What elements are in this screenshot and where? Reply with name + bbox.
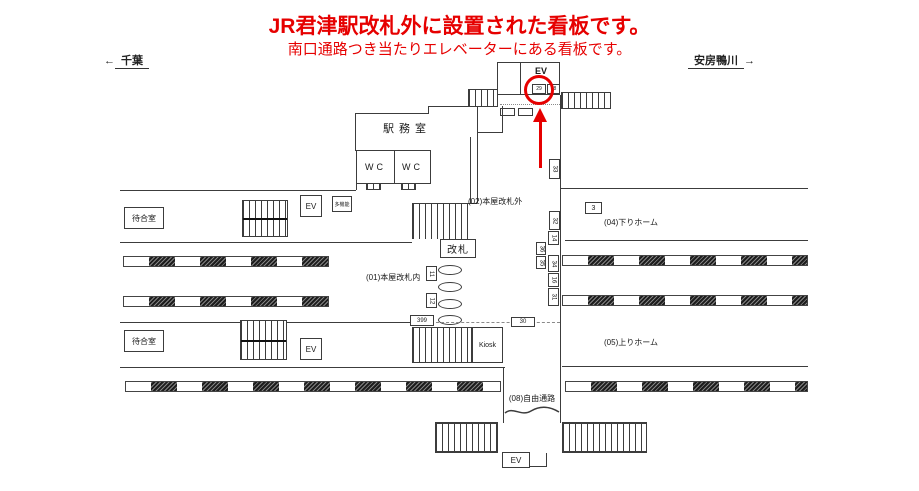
- sign-box-16: 16: [548, 273, 559, 287]
- waiting-room-upper: 待合室: [124, 207, 164, 229]
- corridor-wall: [560, 95, 561, 423]
- pillar-oval: [438, 265, 462, 275]
- platform-edge-line: [560, 188, 808, 189]
- wall-segment: [477, 106, 478, 203]
- wall-segment: [355, 113, 428, 114]
- station-sign-location-map: JR君津駅改札外に設置された看板です。 南口通路つき当たりエレベーターにある看板…: [0, 0, 919, 491]
- sign-box-34: 34: [548, 255, 559, 272]
- sign-box-35: 35: [536, 256, 546, 269]
- area-inside-gate-label: (01)本屋改札内: [366, 272, 420, 283]
- wc-room-right: WC: [394, 150, 431, 184]
- waiting-room-lower: 待合室: [124, 330, 164, 352]
- ticket-gate: 改札: [440, 239, 476, 258]
- down-platform-label: (04)下りホーム: [604, 217, 658, 228]
- wall-segment: [356, 184, 357, 190]
- platform-edge-line: [565, 240, 808, 241]
- wall-segment: [520, 62, 521, 95]
- map-title: JR君津駅改札外に設置された看板です。: [0, 10, 919, 40]
- track-strip: [125, 381, 501, 392]
- wall-segment: [428, 106, 498, 107]
- track-strip: [123, 256, 329, 267]
- gate-boundary-dashed-line: [436, 322, 560, 323]
- platform-edge-line: [562, 366, 808, 367]
- track-strip: [562, 295, 808, 306]
- wall-segment: [530, 466, 546, 467]
- multifunction-toilet: 多機能: [332, 196, 352, 212]
- stairs-south-east: [562, 422, 647, 453]
- direction-east-label: 安房鴨川: [688, 55, 744, 69]
- track-strip: [562, 255, 808, 266]
- stairs-central-upper: [412, 203, 468, 239]
- wall-segment: [546, 453, 547, 467]
- track-strip: [565, 381, 808, 392]
- stairs-lower-left: [240, 320, 287, 360]
- station-office-label: 駅務室: [383, 120, 431, 136]
- wc-room-left: WC: [356, 150, 395, 184]
- sign-box-36: 36: [536, 242, 546, 255]
- stair-landing: [241, 340, 286, 342]
- east-arrow-icon: →: [744, 55, 755, 67]
- stairs-north-east: [561, 92, 611, 109]
- direction-west: ←千葉: [104, 52, 149, 68]
- stairs-upper-left: [242, 200, 288, 237]
- pillar-oval: [438, 315, 462, 325]
- stairs-south-west: [435, 422, 498, 453]
- elevator-south: EV: [502, 452, 530, 468]
- wall-segment: [355, 113, 356, 151]
- sign-box-11: 11: [426, 266, 437, 281]
- area-outside-gate-label: (02)本屋改札外: [468, 196, 522, 207]
- wall-segment: [502, 106, 503, 133]
- direction-west-label: 千葉: [115, 55, 149, 69]
- wall-segment: [428, 106, 429, 114]
- corridor-threshold-line: [500, 104, 560, 105]
- kiosk: Kiosk: [472, 327, 503, 363]
- sign-box-32: 32: [549, 211, 560, 230]
- elevator-lower-left: EV: [300, 338, 322, 360]
- sign-box-30: 30: [511, 317, 535, 327]
- stairs-central-lower: [412, 327, 472, 363]
- free-passage-label: (08)自由通路: [504, 393, 560, 404]
- highlight-circle: [524, 75, 554, 105]
- highlight-arrow-shaft: [539, 122, 542, 168]
- sign-box-12: 12: [426, 293, 437, 308]
- elevator-upper-left: EV: [300, 195, 322, 217]
- wc-entrance-hatch: [366, 183, 381, 190]
- pillar-oval: [438, 299, 462, 309]
- wall-segment: [470, 137, 471, 203]
- stair-landing: [243, 218, 287, 220]
- wc-entrance-hatch: [401, 183, 416, 190]
- west-arrow-icon: ←: [104, 55, 115, 67]
- highlight-arrow-head: [533, 108, 547, 122]
- fixture-box: [518, 108, 533, 116]
- sign-box-31: 31: [548, 288, 559, 306]
- track-strip: [123, 296, 329, 307]
- sign-box-3: 3: [585, 202, 602, 214]
- platform-edge-line: [120, 242, 412, 243]
- platform-edge-line: [120, 190, 356, 191]
- up-platform-label: (05)上りホーム: [604, 337, 658, 348]
- platform-edge-line: [120, 367, 505, 368]
- wall-segment: [477, 132, 503, 133]
- stairs-north-west: [468, 89, 498, 107]
- sign-box-33: 33: [549, 159, 560, 179]
- sign-box-399: 399: [410, 315, 434, 326]
- sign-box-14: 14: [548, 231, 559, 245]
- pillar-oval: [438, 282, 462, 292]
- break-wave-line: [503, 404, 561, 418]
- direction-east: 安房鴨川→: [688, 52, 755, 68]
